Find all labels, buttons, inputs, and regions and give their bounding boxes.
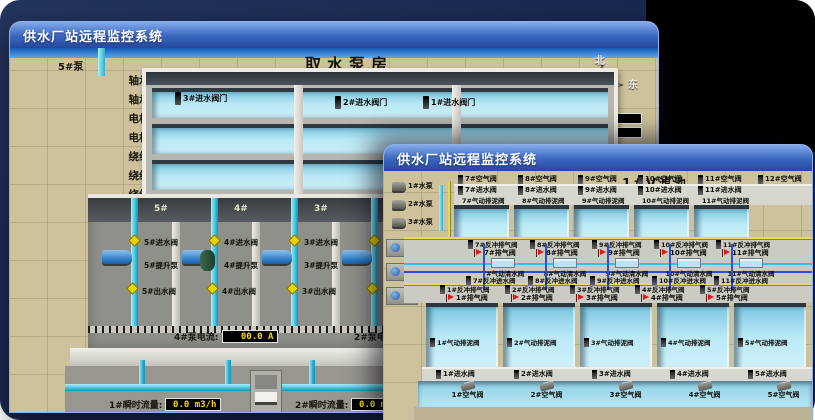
valve-icon <box>670 370 675 379</box>
exhaust-valve[interactable]: 2#排气阀 <box>511 293 576 303</box>
valve-label: 3#进水阀 <box>599 369 631 379</box>
valve-label: 8#进水阀 <box>525 185 557 195</box>
valve-label: 3#排气阀 <box>586 293 618 303</box>
alarm-flag-icon <box>598 249 606 257</box>
pump-bays: 5#进水阀 5#提升泵 5#出水阀 4#进水阀 4#提升泵 4#出水阀 <box>100 222 420 326</box>
sludge-valve[interactable]: 4#气动排泥阀 <box>661 337 738 347</box>
sludge-valve[interactable]: 10#气动排泥阀 <box>642 195 702 205</box>
valve-label: 3#进水阀门 <box>183 93 227 104</box>
filter-pool-titlebar[interactable]: 供水厂站远程监控系统 <box>384 145 812 172</box>
meter-cabinet[interactable] <box>250 370 282 412</box>
valve-label: 9#排气阀 <box>608 248 640 258</box>
inlet-valve[interactable]: 7#进水阀 <box>458 185 518 195</box>
filter-cell-water <box>694 205 749 241</box>
alarm-flag-icon <box>722 249 730 257</box>
valve-actuator-icon <box>739 258 763 268</box>
bottom-air-valve-row: 1#空气阀 2#空气阀 3#空气阀 4#空气阀 5#空气阀 <box>428 383 812 400</box>
valve-label: 11#进水阀 <box>705 185 742 195</box>
sludge-valve[interactable]: 7#气动排泥阀 <box>462 195 522 205</box>
scada-screen: 供水厂站远程监控系统 取水泵房 北 西 南 东 轴承温度1: <box>0 0 815 420</box>
valve-icon <box>638 186 643 195</box>
pump-icon <box>392 200 406 209</box>
air-valve[interactable]: 12#空气阀 <box>758 174 812 184</box>
valve-label: 3#空气阀 <box>610 390 642 400</box>
top-sludge-valve-row: 7#气动排泥阀 8#气动排泥阀 9#气动排泥阀 10#气动排泥阀 11#气动排泥… <box>462 195 762 205</box>
current-display: 00.0 A <box>222 330 278 343</box>
valve-label: 11#排气阀 <box>732 248 769 258</box>
valve-label: 1#空气阀 <box>452 390 484 400</box>
valve-label: 2#空气阀 <box>531 390 563 400</box>
backwash-pump-list: 1#水泵 2#水泵 3#水泵 <box>392 181 433 227</box>
valve-label: 2#排气阀 <box>521 293 553 303</box>
bottom-exhaust-row: 1#排气阀 2#排气阀 3#排气阀 4#排气阀 5#排气阀 <box>446 293 771 303</box>
flow-display: 0.0 m3/h <box>165 398 221 411</box>
compass-east: 东 <box>628 76 638 91</box>
valve-icon <box>758 175 763 184</box>
outlet-valve-label: 5#出水阀 <box>142 286 176 297</box>
valve-icon <box>698 175 703 184</box>
valve-label: 8#空气阀 <box>525 174 557 184</box>
inlet-valve[interactable]: 9#进水阀 <box>578 185 638 195</box>
valve-icon <box>518 175 523 184</box>
backwash-pump[interactable]: 1#水泵 <box>392 181 433 191</box>
valve-label: 12#空气阀 <box>765 174 802 184</box>
intake-valve-2[interactable]: 2#进水阀门 <box>335 96 387 109</box>
valve-icon <box>458 186 463 195</box>
valve-icon <box>738 338 743 347</box>
pump-icon <box>392 218 406 227</box>
filter-cell-water <box>574 205 629 241</box>
valve-label: 1#进水阀 <box>443 369 475 379</box>
sludge-valve[interactable]: 5#气动排泥阀 <box>738 337 812 347</box>
inlet-valve[interactable]: 4#进水阀 <box>670 369 748 379</box>
lift-pump-label: 5#提升泵 <box>144 260 178 271</box>
valve-label: 10#空气阀 <box>645 174 682 184</box>
valve-label: 8#排气阀 <box>546 248 578 258</box>
valve-label: 7#气动排泥阀 <box>462 195 504 205</box>
top-inlet-valve-row: 7#进水阀 8#进水阀 9#进水阀 10#进水阀 11#进水阀 <box>458 185 758 195</box>
pipe <box>98 48 105 76</box>
pump-bay: 4#进水阀 4#提升泵 4#出水阀 <box>180 222 260 326</box>
valve-label: 7#进水阀 <box>465 185 497 195</box>
valve-label: 2#进水阀门 <box>343 97 387 108</box>
valve-label: 1#排气阀 <box>456 293 488 303</box>
air-valve[interactable]: 10#空气阀 <box>638 174 698 184</box>
top-cells <box>454 205 812 237</box>
valve-label: 9#气动排泥阀 <box>582 195 624 205</box>
valve-label: 9#进水阀 <box>585 185 617 195</box>
inlet-valve[interactable]: 2#进水阀 <box>514 369 592 379</box>
window-title: 供水厂站远程监控系统 <box>397 149 537 168</box>
valve-label: 10#气动排泥阀 <box>642 195 689 205</box>
valve-icon <box>638 175 643 184</box>
flow-label: 1#瞬时流量: <box>109 398 162 411</box>
pipe <box>439 185 443 231</box>
valve-icon <box>423 96 429 109</box>
inlet-valve-label: 3#进水阀 <box>304 237 338 248</box>
bottom-sludge-valve-row: 1#气动排泥阀 2#气动排泥阀 3#气动排泥阀 4#气动排泥阀 5#气动排泥阀 <box>430 337 812 347</box>
valve-label: 5#空气阀 <box>768 390 800 400</box>
alarm-flag-icon <box>474 249 482 257</box>
riser-pipe <box>131 198 138 326</box>
air-valve[interactable]: 2#空气阀 <box>507 383 586 400</box>
valve-icon <box>518 186 523 195</box>
valve-icon <box>661 338 666 347</box>
valve-actuator-icon <box>491 258 515 268</box>
pump-bay: 3#进水阀 3#提升泵 3#出水阀 <box>260 222 340 326</box>
valve-label: 3#气动排泥阀 <box>591 337 633 347</box>
valve-icon <box>430 338 435 347</box>
valve-label: 5#排气阀 <box>716 293 748 303</box>
alarm-flag-icon <box>641 294 649 302</box>
sludge-valve[interactable]: 11#气动排泥阀 <box>702 195 762 205</box>
compass-north: 北 <box>595 52 605 67</box>
valve-label: 2#气动排泥阀 <box>514 337 556 347</box>
valve-icon <box>748 370 753 379</box>
alarm-flag-icon <box>536 249 544 257</box>
valve-actuator-icon <box>553 258 577 268</box>
backwash-pump[interactable]: 3#水泵 <box>392 217 433 227</box>
valve-label: 2#进水阀 <box>521 369 553 379</box>
flow-meter-1: 1#瞬时流量: 0.0 m3/h <box>109 398 221 411</box>
valve-icon <box>175 92 181 105</box>
riser-pipe <box>371 198 378 326</box>
exhaust-valve[interactable]: 1#排气阀 <box>446 293 511 303</box>
valve-label: 4#进水阀 <box>677 369 709 379</box>
alarm-flag-icon <box>576 294 584 302</box>
valve-icon <box>468 240 473 249</box>
sludge-valve[interactable]: 2#气动排泥阀 <box>507 337 584 347</box>
inlet-valve-label: 5#进水阀 <box>144 237 178 248</box>
filter-cell-water <box>634 205 689 241</box>
valve-icon <box>584 338 589 347</box>
pump-label: 3#水泵 <box>408 217 433 227</box>
pump-label: 1#水泵 <box>408 181 433 191</box>
inlet-valve-label: 4#进水阀 <box>224 237 258 248</box>
pipe-stub <box>225 360 231 384</box>
lift-pump-label: 4#提升泵 <box>224 260 258 271</box>
inlet-valve[interactable]: 5#进水阀 <box>748 369 812 379</box>
lift-pump-icon[interactable] <box>102 250 132 264</box>
pump-house-titlebar[interactable]: 供水厂站远程监控系统 <box>10 22 658 49</box>
air-valve[interactable]: 11#空气阀 <box>698 174 758 184</box>
valve-label: 5#进水阀 <box>755 369 787 379</box>
valve-label: 4#空气阀 <box>689 390 721 400</box>
valve-icon <box>698 186 703 195</box>
inlet-valve[interactable]: 10#进水阀 <box>638 185 698 195</box>
valve-label: 1#气动排泥阀 <box>437 337 479 347</box>
valve-label: 4#气动排泥阀 <box>668 337 710 347</box>
top-air-valve-row: 7#空气阀 8#空气阀 9#空气阀 10#空气阀 11#空气阀 12#空气阀 <box>458 174 812 184</box>
bay-number: 4# <box>180 204 260 214</box>
blank-area <box>646 0 815 152</box>
sludge-valve[interactable]: 3#气动排泥阀 <box>584 337 661 347</box>
air-valve[interactable]: 9#空气阀 <box>578 174 638 184</box>
tank-vessel <box>200 250 215 271</box>
air-valve[interactable]: 1#空气阀 <box>428 383 507 400</box>
pipe-stub <box>309 360 315 384</box>
outlet-valve-label: 3#出水阀 <box>302 286 336 297</box>
valve-icon <box>507 338 512 347</box>
valve-label: 10#进水阀 <box>645 185 682 195</box>
bay-number: 3# <box>260 204 340 214</box>
valve-label: 8#气动排泥阀 <box>522 195 564 205</box>
valve-label: 11#空气阀 <box>705 174 742 184</box>
valve-label: 11#气动排泥阀 <box>702 195 749 205</box>
backwash-pump[interactable]: 2#水泵 <box>392 199 433 209</box>
bottom-cells <box>426 303 812 367</box>
filter-pool-window: 供水厂站远程监控系统 1#V滤池 1#水泵 2#水泵 3#水泵 1#风机 <box>384 145 812 420</box>
air-valve[interactable]: 7#空气阀 <box>458 174 518 184</box>
inlet-valve[interactable]: 11#进水阀 <box>698 185 758 195</box>
exhaust-valve[interactable]: 5#排气阀 <box>706 293 771 303</box>
valve-icon <box>592 370 597 379</box>
flow-label: 2#瞬时流量: <box>295 398 348 411</box>
valve-icon <box>578 186 583 195</box>
inlet-valve[interactable]: 8#进水阀 <box>518 185 578 195</box>
valve-actuator-icon <box>615 258 639 268</box>
riser-pipe <box>291 198 298 326</box>
valve-label: 9#空气阀 <box>585 174 617 184</box>
valve-label: 10#排气阀 <box>670 248 707 258</box>
filter-pool-scene: 1#V滤池 1#水泵 2#水泵 3#水泵 1#风机 <box>384 171 812 420</box>
valve-icon <box>440 285 445 294</box>
bay-number: 5# <box>100 204 180 214</box>
valve-label: 5#气动排泥阀 <box>745 337 787 347</box>
filter-cell-water <box>514 205 569 241</box>
filter-cell-water <box>454 205 509 241</box>
alarm-flag-icon <box>446 294 454 302</box>
pump-icon <box>392 182 406 191</box>
top-exhaust-row: 7#排气阀 8#排气阀 9#排气阀 10#排气阀 11#排气阀 <box>474 248 784 258</box>
tank-divider <box>294 85 303 200</box>
window-title: 供水厂站远程监控系统 <box>23 26 163 45</box>
pump5-panel-title: 5#泵 <box>58 58 83 73</box>
inlet-valve[interactable]: 1#进水阀 <box>436 369 514 379</box>
pipe-stub <box>139 360 145 384</box>
air-valve[interactable]: 8#空气阀 <box>518 174 578 184</box>
alarm-flag-icon <box>660 249 668 257</box>
lift-pump-icon[interactable] <box>342 250 372 264</box>
sludge-valve[interactable]: 9#气动排泥阀 <box>582 195 642 205</box>
valve-label: 1#进水阀门 <box>431 97 475 108</box>
exhaust-valve[interactable]: 3#排气阀 <box>576 293 641 303</box>
alarm-flag-icon <box>511 294 519 302</box>
sludge-valve[interactable]: 8#气动排泥阀 <box>522 195 582 205</box>
air-valve[interactable]: 5#空气阀 <box>744 383 812 400</box>
valve-label: 7#排气阀 <box>484 248 516 258</box>
outlet-valve-label: 4#出水阀 <box>222 286 256 297</box>
valve-icon <box>578 175 583 184</box>
intake-valve-1[interactable]: 1#进水阀门 <box>423 96 475 109</box>
pool-outer-wall <box>414 407 812 420</box>
valve-icon <box>458 175 463 184</box>
valve-label: 7#空气阀 <box>465 174 497 184</box>
pump-label: 2#水泵 <box>408 199 433 209</box>
sludge-valve[interactable]: 1#气动排泥阀 <box>430 337 507 347</box>
valve-icon <box>514 370 519 379</box>
air-valve[interactable]: 3#空气阀 <box>586 383 665 400</box>
alarm-flag-icon <box>706 294 714 302</box>
lift-pump-label: 3#提升泵 <box>304 260 338 271</box>
valve-icon <box>436 370 441 379</box>
bottom-inlet-valve-row: 1#进水阀 2#进水阀 3#进水阀 4#进水阀 5#进水阀 <box>436 369 812 379</box>
air-valve[interactable]: 4#空气阀 <box>665 383 744 400</box>
current-label: 4#泵电流: <box>174 330 218 343</box>
lift-pump-icon[interactable] <box>262 250 292 264</box>
pump4-current: 4#泵电流: 00.0 A <box>174 330 278 343</box>
intake-valve-3[interactable]: 3#进水阀门 <box>175 92 227 105</box>
pump-bay: 5#进水阀 5#提升泵 5#出水阀 <box>100 222 180 326</box>
valve-actuator-icon <box>677 258 701 268</box>
valve-label: 4#排气阀 <box>651 293 683 303</box>
tank-top-band <box>146 72 614 85</box>
valve-icon <box>335 96 341 109</box>
exhaust-valve[interactable]: 4#排气阀 <box>641 293 706 303</box>
inlet-valve[interactable]: 3#进水阀 <box>592 369 670 379</box>
